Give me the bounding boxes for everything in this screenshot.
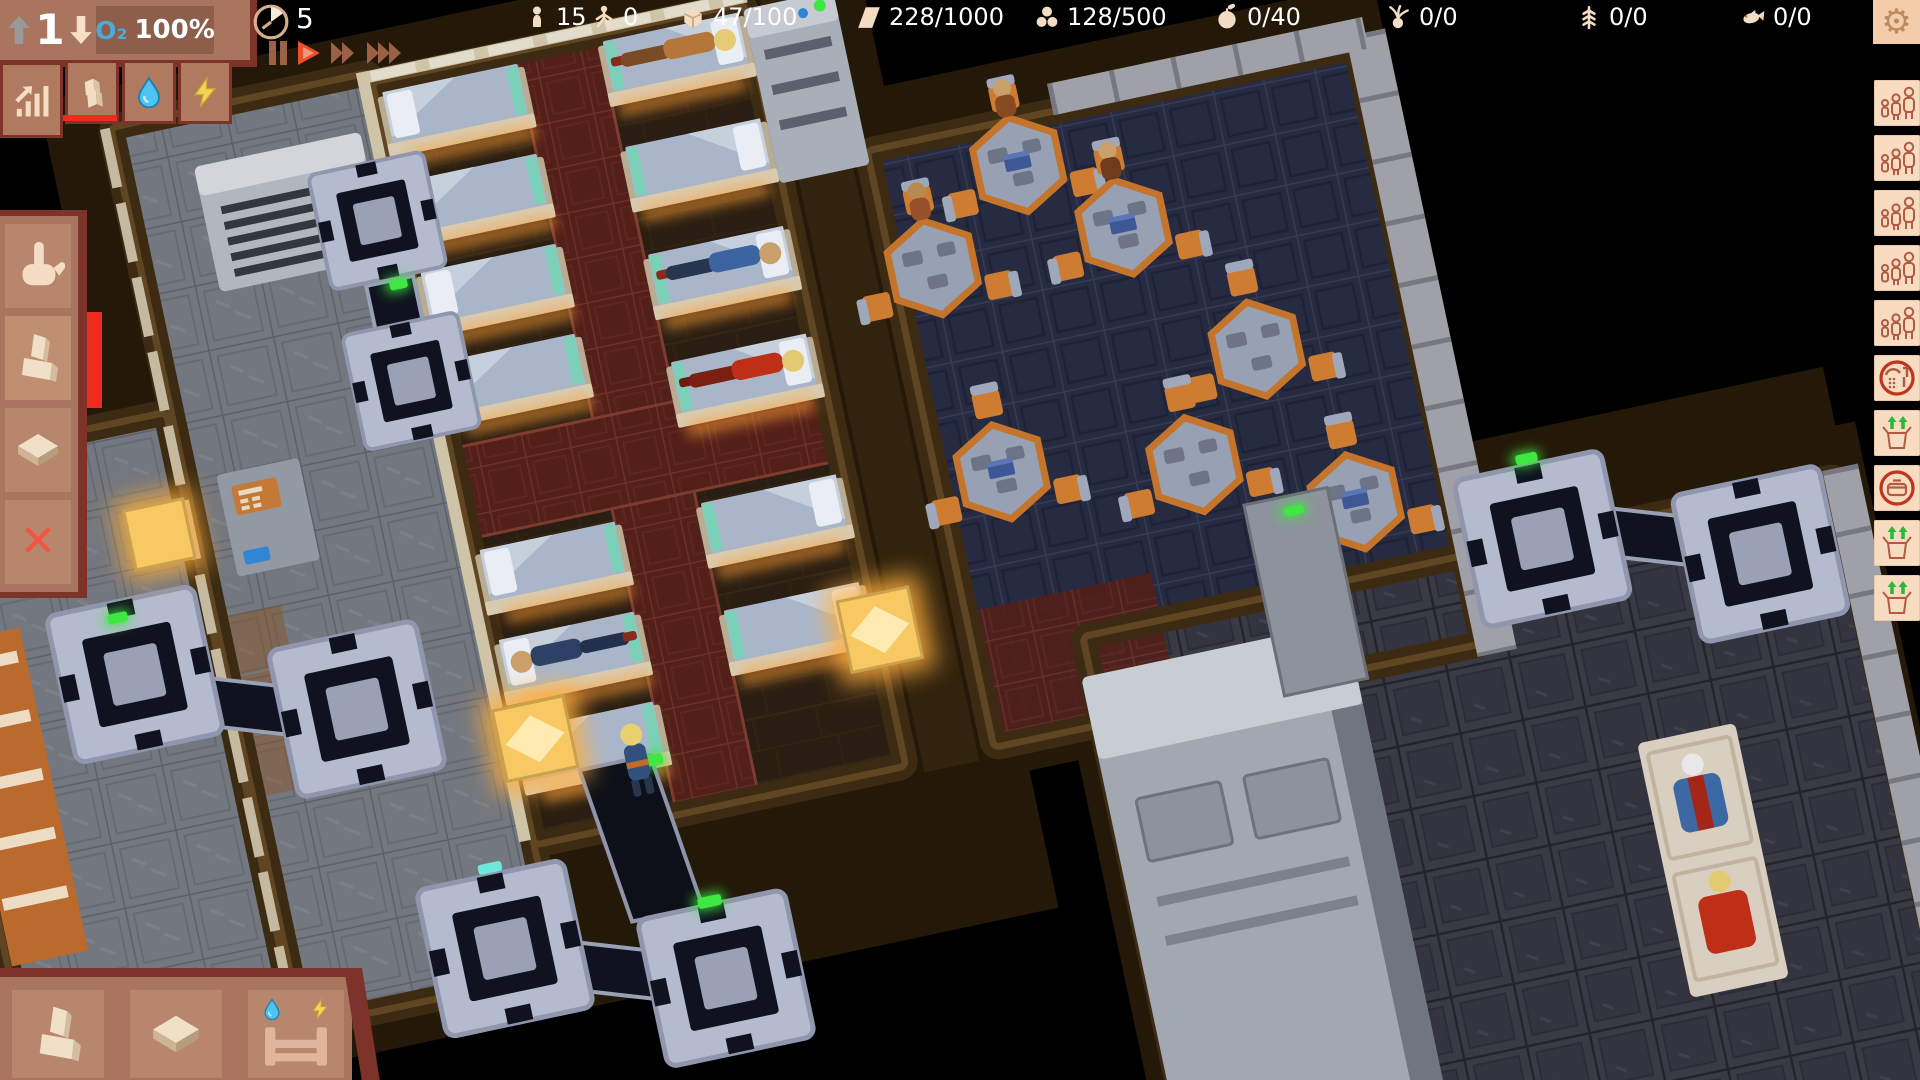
- sidebar-family-5[interactable]: [1874, 300, 1920, 346]
- resource-colonists: 15: [525, 1, 587, 33]
- resource-value: 0/0: [1773, 3, 1812, 31]
- resource-food: 128/500: [1034, 1, 1167, 33]
- wheat-icon: [1576, 4, 1602, 30]
- floor-number: 1: [30, 0, 70, 60]
- resource-fruit: 0/40: [1214, 1, 1301, 33]
- power-icon: [189, 76, 221, 108]
- resource-metal: 228/1000: [856, 1, 1004, 33]
- sidebar-dwelling-alert[interactable]: [1874, 355, 1920, 401]
- build-floor-button[interactable]: [130, 990, 222, 1078]
- food-icon: [1034, 4, 1060, 30]
- build-furnishing-button[interactable]: [248, 990, 344, 1078]
- fish-icon: [1740, 4, 1766, 30]
- family-icon: [1877, 303, 1917, 343]
- build-wall-button[interactable]: [12, 990, 104, 1078]
- tool-panel: ✕: [0, 210, 87, 598]
- floor-panel: 1 O₂ 100%: [0, 0, 257, 67]
- family-icon: [1877, 138, 1917, 178]
- game-viewport[interactable]: [0, 0, 1920, 1080]
- clock-icon: [252, 3, 290, 41]
- settings-button[interactable]: ⚙: [1873, 0, 1920, 44]
- sidebar-unpack-3[interactable]: [1874, 575, 1920, 621]
- unpack-box-icon: [1877, 413, 1917, 453]
- gear-icon: ⚙: [1881, 2, 1911, 42]
- sidebar-unpack-1[interactable]: [1874, 410, 1920, 456]
- toggle-water[interactable]: [122, 60, 176, 124]
- unpack-box-icon: [1877, 578, 1917, 618]
- fast-forward-icon[interactable]: [330, 41, 358, 65]
- resource-wheat: 0/0: [1576, 1, 1648, 33]
- toggle-power[interactable]: [178, 60, 232, 124]
- metal-icon: [856, 4, 882, 30]
- floor-up-button[interactable]: [8, 16, 30, 44]
- tool-select[interactable]: [5, 224, 71, 308]
- tool-build-floor[interactable]: [5, 408, 71, 492]
- cookpot-alert-icon: [1877, 468, 1917, 508]
- resource-value: 47/100: [713, 3, 797, 31]
- stats-icon: [13, 81, 51, 119]
- resource-value: 0: [623, 3, 638, 31]
- play-icon[interactable]: [296, 40, 322, 66]
- sidebar-family-1[interactable]: [1874, 80, 1920, 126]
- floor-icon: [144, 1002, 208, 1066]
- buildings-icon: [75, 75, 109, 109]
- resource-value: 0/0: [1609, 3, 1648, 31]
- wall-icon: [26, 1002, 90, 1066]
- oxygen-label: O₂: [95, 16, 127, 45]
- pause-icon[interactable]: [268, 41, 288, 65]
- sidebar-cookpot-alert[interactable]: [1874, 465, 1920, 511]
- toggle-buildings-selected-indicator: [63, 115, 117, 121]
- resource-value: 228/1000: [889, 3, 1004, 31]
- oxygen-indicator: O₂ 100%: [96, 6, 214, 54]
- fruit-icon: [1214, 4, 1240, 30]
- resource-value: 128/500: [1067, 3, 1167, 31]
- furnishing-icon: [263, 1024, 329, 1070]
- select-hand-icon: [11, 239, 65, 293]
- family-icon: [1877, 83, 1917, 123]
- plant-icon: [1386, 4, 1412, 30]
- game-screen: 1 O₂ 100% 5 15 0 47/100 228/1000 128/500…: [0, 0, 1920, 1080]
- family-icon: [1877, 248, 1917, 288]
- worker-icon: [592, 5, 616, 29]
- tool-build-wall[interactable]: [5, 316, 71, 400]
- sidebar-unpack-2[interactable]: [1874, 520, 1920, 566]
- toggle-stats[interactable]: [0, 62, 63, 138]
- resource-workers: 0: [592, 1, 638, 33]
- resource-value: 15: [556, 3, 587, 31]
- day-counter: 5: [296, 2, 314, 35]
- unpack-box-icon: [1877, 523, 1917, 563]
- build-wall-icon: [10, 330, 66, 386]
- family-icon: [1877, 193, 1917, 233]
- speed-controls: [268, 40, 408, 66]
- sidebar-family-3[interactable]: [1874, 190, 1920, 236]
- build-panel: [0, 968, 352, 1080]
- sidebar-family-2[interactable]: [1874, 135, 1920, 181]
- power-icon: [309, 998, 331, 1020]
- fastest-forward-icon[interactable]: [366, 41, 408, 65]
- resource-value: 0/0: [1419, 3, 1458, 31]
- build-floor-icon: [10, 422, 66, 478]
- tool-demolish[interactable]: ✕: [5, 500, 71, 584]
- stone-icon: [680, 4, 706, 30]
- dwelling-alert-icon: [1877, 358, 1917, 398]
- resource-value: 0/40: [1247, 3, 1301, 31]
- resource-stone: 47/100: [680, 1, 797, 33]
- oxygen-value: 100%: [134, 15, 214, 45]
- resource-plants: 0/0: [1386, 1, 1458, 33]
- sidebar-family-4[interactable]: [1874, 245, 1920, 291]
- floor-down-button[interactable]: [70, 16, 92, 44]
- resource-fish: 0/0: [1740, 1, 1812, 33]
- tool-selected-indicator: [87, 312, 102, 408]
- water-icon: [261, 998, 283, 1020]
- colonist-icon: [525, 5, 549, 29]
- water-icon: [133, 76, 165, 108]
- demolish-icon: ✕: [20, 520, 57, 564]
